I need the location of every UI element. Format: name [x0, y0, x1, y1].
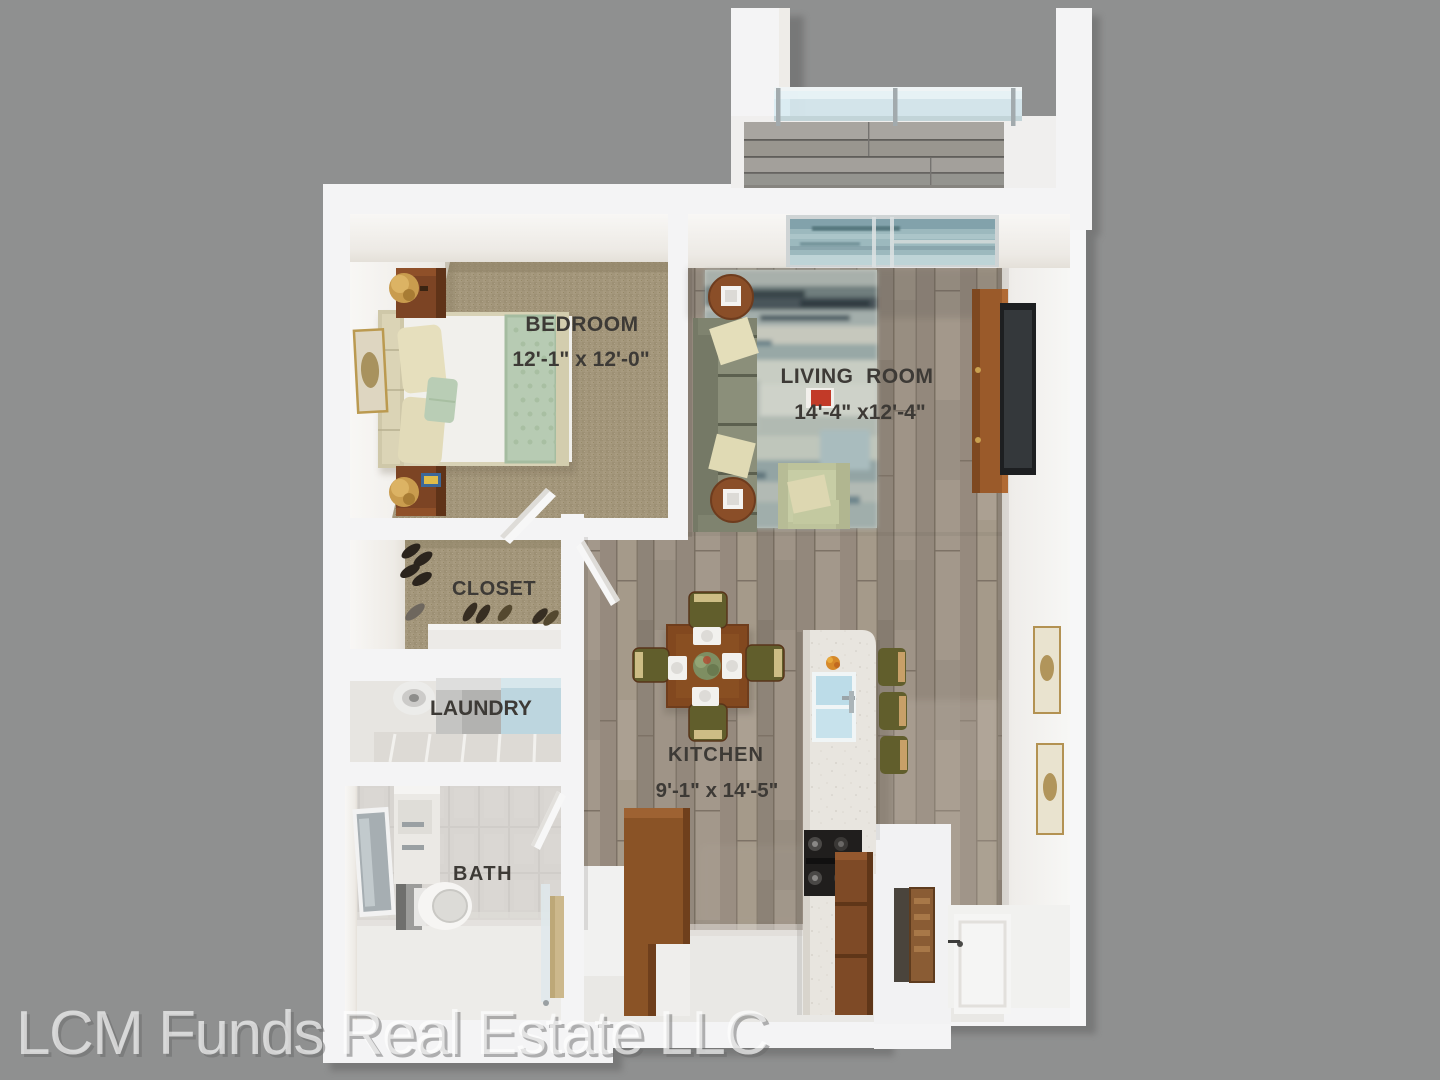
- svg-text:LIVING ROOM: LIVING ROOM: [781, 365, 934, 388]
- svg-text:9'-1" x 14'-5": 9'-1" x 14'-5": [656, 779, 779, 802]
- svg-text:CLOSET: CLOSET: [452, 578, 536, 600]
- svg-text:LCM Funds Real Estate LLC: LCM Funds Real Estate LLC: [16, 999, 768, 1068]
- svg-text:12'-1" x 12'-0": 12'-1" x 12'-0": [512, 348, 649, 371]
- svg-text:LAUNDRY: LAUNDRY: [430, 697, 532, 720]
- svg-text:BATH: BATH: [453, 863, 513, 885]
- svg-text:KITCHEN: KITCHEN: [668, 744, 764, 766]
- svg-text:14'-4" x12'-4": 14'-4" x12'-4": [794, 401, 925, 424]
- svg-text:BEDROOM: BEDROOM: [525, 313, 638, 336]
